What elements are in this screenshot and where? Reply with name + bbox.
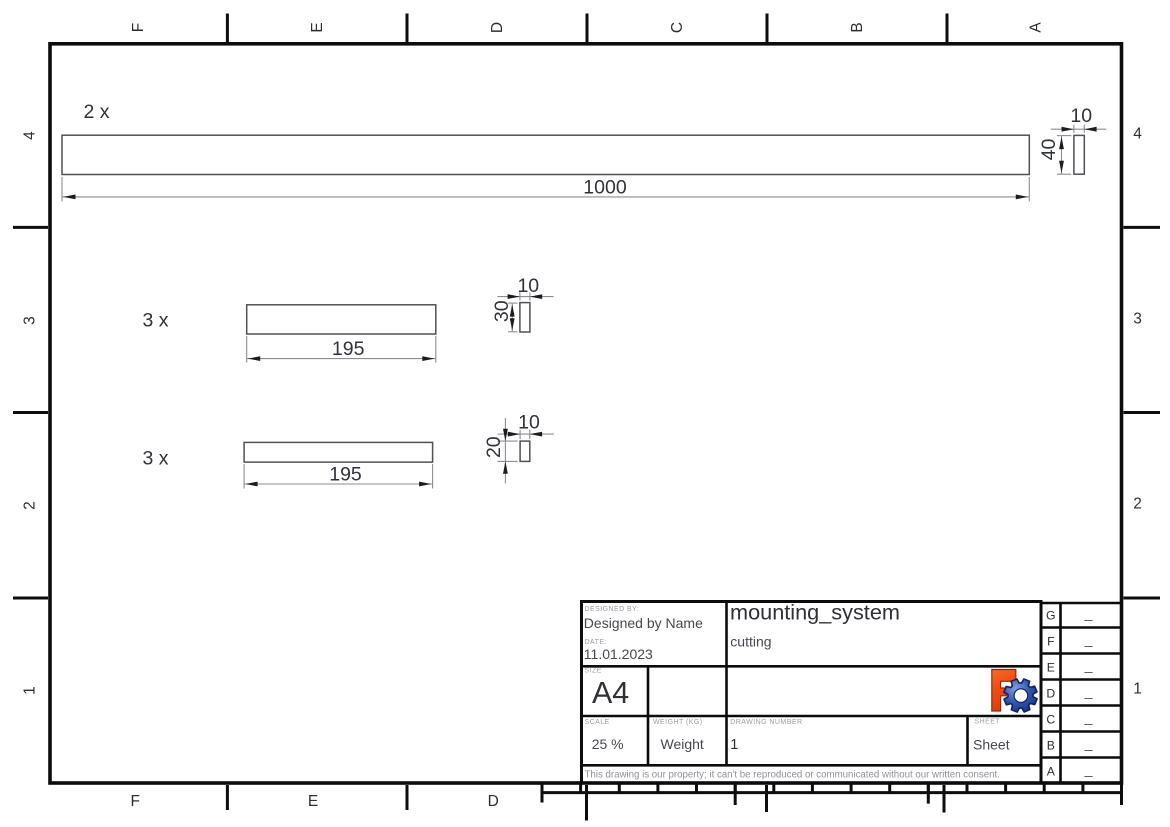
svg-text:10: 10 (518, 412, 540, 434)
svg-text:_: _ (1084, 683, 1093, 699)
svg-text:_: _ (1084, 657, 1093, 673)
svg-text:3 x: 3 x (143, 310, 169, 332)
svg-text:E: E (308, 793, 318, 810)
svg-text:_: _ (1084, 605, 1093, 621)
svg-text:11.01.2023: 11.01.2023 (584, 646, 653, 662)
svg-text:SCALE: SCALE (585, 719, 610, 726)
svg-text:20: 20 (483, 436, 505, 458)
svg-text:F: F (1047, 634, 1054, 648)
svg-text:G: G (1046, 608, 1055, 622)
svg-text:B: B (849, 22, 866, 32)
svg-text:3 x: 3 x (143, 447, 169, 469)
svg-text:mounting_system: mounting_system (730, 600, 900, 625)
svg-text:SIZE: SIZE (585, 668, 602, 675)
svg-text:_: _ (1084, 709, 1093, 725)
svg-text:Sheet: Sheet (973, 736, 1010, 752)
svg-text:195: 195 (329, 464, 362, 486)
svg-text:Weight: Weight (661, 736, 704, 752)
svg-text:_: _ (1084, 761, 1093, 777)
svg-text:D: D (488, 793, 499, 810)
svg-text:1: 1 (22, 686, 39, 695)
svg-text:Designed by Name: Designed by Name (584, 615, 703, 631)
svg-text:D: D (1046, 686, 1055, 700)
svg-text:4: 4 (1133, 126, 1142, 143)
svg-text:40: 40 (1038, 139, 1060, 161)
svg-text:cutting: cutting (730, 633, 771, 649)
svg-text:2: 2 (1133, 496, 1142, 513)
svg-text:1: 1 (730, 737, 738, 753)
svg-text:30: 30 (491, 300, 513, 322)
svg-text:10: 10 (1070, 105, 1092, 127)
svg-text:A: A (1027, 22, 1044, 33)
svg-text:2 x: 2 x (84, 101, 110, 123)
svg-text:3: 3 (22, 316, 39, 325)
svg-text:F: F (130, 23, 147, 32)
svg-text:This drawing is our property;: This drawing is our property; it can't b… (585, 770, 1000, 781)
svg-text:F: F (130, 793, 139, 810)
svg-text:1: 1 (1133, 681, 1142, 698)
svg-text:_: _ (1084, 735, 1093, 751)
svg-text:4: 4 (22, 131, 39, 140)
svg-text:195: 195 (332, 338, 365, 360)
svg-text:E: E (309, 22, 326, 32)
svg-text:C: C (1046, 712, 1055, 726)
svg-text:2: 2 (22, 501, 39, 510)
svg-text:DESIGNED BY:: DESIGNED BY: (585, 606, 640, 613)
svg-text:DRAWING NUMBER: DRAWING NUMBER (730, 719, 802, 726)
svg-text:B: B (1047, 738, 1055, 752)
svg-text:_: _ (1084, 631, 1093, 647)
svg-text:D: D (489, 22, 506, 33)
svg-text:1000: 1000 (583, 177, 627, 199)
svg-text:SHEET: SHEET (975, 719, 1001, 726)
svg-text:E: E (1047, 660, 1055, 674)
svg-text:WEIGHT (KG): WEIGHT (KG) (653, 719, 703, 726)
svg-text:25 %: 25 % (592, 736, 624, 752)
svg-text:A4: A4 (592, 676, 629, 710)
svg-text:3: 3 (1133, 311, 1142, 328)
svg-text:C: C (669, 22, 686, 33)
svg-text:A: A (1047, 764, 1056, 778)
svg-text:10: 10 (517, 275, 539, 297)
